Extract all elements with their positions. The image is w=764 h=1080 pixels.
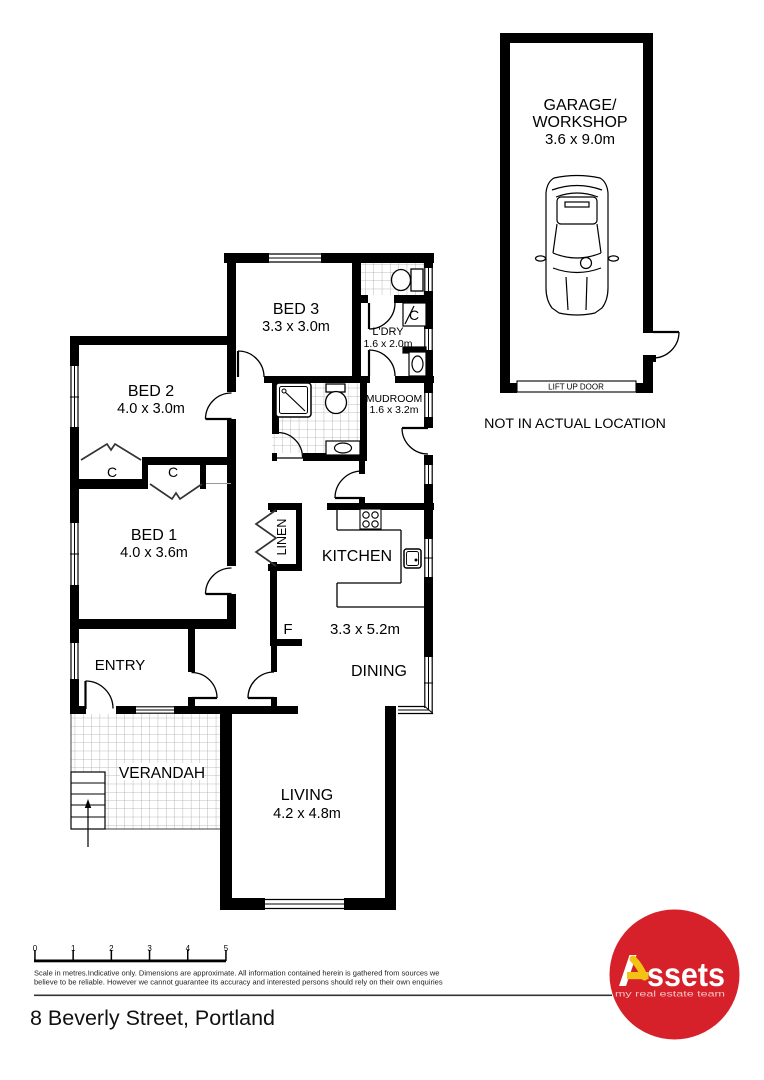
svg-text:0: 0	[33, 944, 38, 953]
svg-text:4: 4	[186, 944, 191, 953]
svg-text:WORKSHOP: WORKSHOP	[532, 114, 627, 131]
svg-text:1: 1	[71, 944, 76, 953]
svg-text:4.0 x 3.0m: 4.0 x 3.0m	[117, 401, 185, 417]
svg-text:my real estate team: my real estate team	[615, 989, 725, 999]
svg-text:BED 2: BED 2	[128, 383, 174, 400]
svg-text:LIVING: LIVING	[281, 787, 333, 804]
svg-text:C: C	[168, 464, 178, 480]
svg-text:L'DRY: L'DRY	[372, 326, 404, 338]
svg-text:5: 5	[224, 944, 229, 953]
svg-text:3: 3	[147, 944, 152, 953]
svg-text:Scale in metres.Indicative onl: Scale in metres.Indicative only. Dimensi…	[34, 969, 439, 978]
svg-text:8 Beverly Street, Portland: 8 Beverly Street, Portland	[30, 1006, 275, 1030]
svg-text:1.6 x 3.2m: 1.6 x 3.2m	[369, 404, 418, 416]
svg-text:DINING: DINING	[351, 663, 407, 680]
svg-text:GARAGE/: GARAGE/	[544, 97, 617, 114]
svg-text:3.3 x 3.0m: 3.3 x 3.0m	[262, 319, 330, 335]
svg-text:2: 2	[109, 944, 114, 953]
svg-text:BED 1: BED 1	[131, 527, 177, 544]
svg-text:LIFT UP DOOR: LIFT UP DOOR	[548, 383, 604, 392]
svg-text:3.6 x 9.0m: 3.6 x 9.0m	[545, 131, 615, 148]
svg-text:3.3 x 5.2m: 3.3 x 5.2m	[330, 621, 400, 638]
svg-text:VERANDAH: VERANDAH	[119, 765, 205, 782]
svg-text:NOT IN ACTUAL LOCATION: NOT IN ACTUAL LOCATION	[484, 416, 666, 432]
svg-text:KITCHEN: KITCHEN	[322, 548, 392, 565]
svg-text:believe to be reliable. Howeve: believe to be reliable. However we canno…	[34, 978, 443, 987]
svg-text:ENTRY: ENTRY	[95, 657, 146, 674]
svg-text:BED 3: BED 3	[273, 301, 319, 318]
svg-text:1.6 x 2.0m: 1.6 x 2.0m	[363, 338, 412, 350]
svg-text:C: C	[409, 307, 419, 323]
svg-text:C: C	[107, 464, 117, 480]
svg-text:4.0 x 3.6m: 4.0 x 3.6m	[120, 545, 188, 561]
svg-text:F: F	[283, 621, 292, 638]
svg-text:4.2 x 4.8m: 4.2 x 4.8m	[273, 806, 341, 822]
svg-text:LINEN: LINEN	[275, 519, 289, 556]
